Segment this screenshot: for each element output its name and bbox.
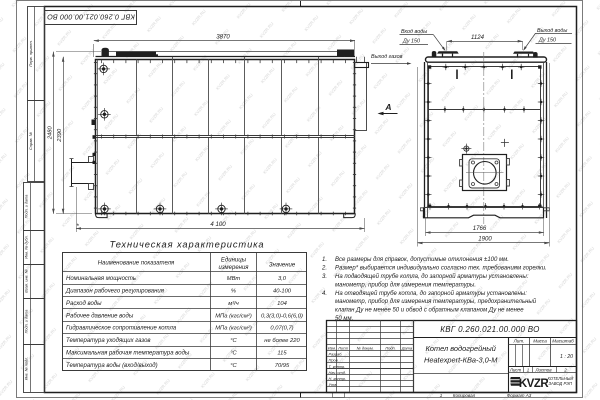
svg-text:Котел водогрейный: Котел водогрейный xyxy=(426,344,496,353)
svg-text:Масштаб: Масштаб xyxy=(552,339,574,344)
svg-text:Инв. № подл.: Инв. № подл. xyxy=(25,357,29,381)
svg-text:Нач. отд.: Нач. отд. xyxy=(329,370,346,375)
svg-text:Температура уходящих газов: Температура уходящих газов xyxy=(66,338,151,344)
svg-text:4.: 4. xyxy=(322,291,327,297)
svg-text:1766: 1766 xyxy=(473,225,487,232)
svg-text:Техническая характеристика: Техническая характеристика xyxy=(109,239,264,249)
svg-text:МПа (кгс/см²): МПа (кгс/см²) xyxy=(215,313,252,319)
svg-text:°С: °С xyxy=(230,363,237,369)
svg-text:Изм.: Изм. xyxy=(328,345,336,350)
svg-text:Пров.: Пров. xyxy=(329,358,339,363)
svg-text:104: 104 xyxy=(277,301,287,307)
svg-text:Номинальная мощность: Номинальная мощность xyxy=(66,276,136,282)
svg-text:2.: 2. xyxy=(321,266,327,272)
svg-text:КВГ 0.260.021.00.000 ВО: КВГ 0.260.021.00.000 ВО xyxy=(440,325,539,334)
svg-text:Масса: Масса xyxy=(533,339,547,344)
svg-text:манометр, прибор для измерения: манометр, прибор для измерения температу… xyxy=(335,282,476,288)
svg-text:2480: 2480 xyxy=(47,125,53,140)
svg-text:А: А xyxy=(384,102,391,112)
svg-text:Гидравлическое сопротивление к: Гидравлическое сопротивление котла xyxy=(66,326,177,332)
svg-text:1124: 1124 xyxy=(471,34,485,41)
svg-text:Копировал: Копировал xyxy=(453,393,476,398)
svg-text:Подп. и дата: Подп. и дата xyxy=(25,195,29,219)
svg-text:МВт: МВт xyxy=(227,276,241,282)
svg-text:1.: 1. xyxy=(322,257,327,263)
svg-text:не более 220: не более 220 xyxy=(264,338,300,344)
svg-text:115: 115 xyxy=(277,351,287,357)
svg-text:ЗАВОД РЭП: ЗАВОД РЭП xyxy=(549,381,573,386)
svg-text:40-100: 40-100 xyxy=(273,289,292,295)
svg-text:°С: °С xyxy=(230,351,237,357)
svg-text:клапан Ду не менее 50 и обвод: клапан Ду не менее 50 и обвод с обратным… xyxy=(335,308,524,314)
svg-text:Подп.: Подп. xyxy=(385,345,395,350)
svg-text:%: % xyxy=(231,289,236,295)
svg-text:KVZR: KVZR xyxy=(519,378,550,390)
svg-text:Размер* выбирается индивидуаль: Размер* выбирается индивидуально согласн… xyxy=(335,266,547,272)
svg-text:Взам. инв. №: Взам. инв. № xyxy=(25,269,29,292)
svg-text:Лист: Лист xyxy=(337,345,349,350)
svg-text:Единицы: Единицы xyxy=(221,258,247,264)
svg-text:Ду 150: Ду 150 xyxy=(538,38,556,44)
svg-text:На подводящей трубе котла, до: На подводящей трубе котла, до запорной а… xyxy=(335,273,529,280)
svg-text:измерения: измерения xyxy=(218,265,249,271)
svg-text:Лит.: Лит. xyxy=(513,339,525,344)
svg-text:Рабочее давление воды: Рабочее давление воды xyxy=(66,313,134,319)
svg-text:Максимальная рабочая температу: Максимальная рабочая температура воды xyxy=(66,351,190,357)
svg-text:Н. контр.: Н. контр. xyxy=(329,376,347,381)
svg-text:1900: 1900 xyxy=(478,236,492,243)
svg-text:Все размеры для справок, допус: Все размеры для справок, допустимые откл… xyxy=(335,257,509,263)
svg-text:0,3(3,0)-0,6(6,0): 0,3(3,0)-0,6(6,0) xyxy=(261,313,303,319)
svg-text:Выход воды: Выход воды xyxy=(537,28,567,34)
svg-text:КВГ 0.260.021.00.000 ВО: КВГ 0.260.021.00.000 ВО xyxy=(47,13,135,22)
svg-text:Подп. и дата: Подп. и дата xyxy=(25,310,29,334)
svg-text:Формат А3: Формат А3 xyxy=(507,393,532,398)
svg-text:2390: 2390 xyxy=(57,128,63,143)
svg-text:Heatexpert-КВа-3,0-М: Heatexpert-КВа-3,0-М xyxy=(424,356,498,365)
svg-text:1 : 20: 1 : 20 xyxy=(560,354,573,360)
svg-text:МПа (кгс/см²): МПа (кгс/см²) xyxy=(215,326,252,332)
svg-text:Листов: Листов xyxy=(535,367,553,372)
svg-text:Дата: Дата xyxy=(401,345,413,350)
svg-text:Ду 150: Ду 150 xyxy=(402,39,420,45)
svg-text:4 100: 4 100 xyxy=(210,221,226,228)
svg-text:3.: 3. xyxy=(322,274,327,280)
svg-text:3870: 3870 xyxy=(216,33,230,40)
svg-text:Выход газов: Выход газов xyxy=(371,54,403,60)
svg-text:Разраб.: Разраб. xyxy=(329,352,343,357)
svg-text:Т. контр.: Т. контр. xyxy=(329,364,346,369)
svg-text:°С: °С xyxy=(230,338,237,344)
svg-text:манометр, прибор для измерения: манометр, прибор для измерения температу… xyxy=(335,298,537,305)
svg-text:Значение: Значение xyxy=(269,263,296,269)
svg-text:КОТЕЛЬНЫЙ: КОТЕЛЬНЫЙ xyxy=(548,376,574,381)
svg-text:Расход воды: Расход воды xyxy=(66,301,102,307)
svg-text:70/95: 70/95 xyxy=(275,363,290,369)
svg-text:0,07(0,7): 0,07(0,7) xyxy=(270,326,293,332)
svg-text:м³/ч: м³/ч xyxy=(228,301,239,307)
svg-text:Инв. № дубл.: Инв. № дубл. xyxy=(25,235,29,258)
svg-text:На отводящей трубе котла, до з: На отводящей трубе котла, до запорной ар… xyxy=(335,290,527,297)
svg-text:2: 2 xyxy=(563,367,567,372)
svg-text:Диапазон рабочего регулировани: Диапазон рабочего регулирования xyxy=(65,289,165,295)
svg-text:Утв.: Утв. xyxy=(329,382,338,387)
svg-text:3,0: 3,0 xyxy=(278,276,287,282)
svg-text:Лист: Лист xyxy=(509,367,522,372)
svg-text:Температура воды (вход/выход): Температура воды (вход/выход) xyxy=(66,363,158,369)
svg-text:Справ. №: Справ. № xyxy=(28,131,33,150)
svg-text:№ докум.: № докум. xyxy=(357,345,374,350)
svg-text:Перв. примен.: Перв. примен. xyxy=(28,40,33,67)
svg-text:Наименование показателя: Наименование показателя xyxy=(98,261,175,267)
